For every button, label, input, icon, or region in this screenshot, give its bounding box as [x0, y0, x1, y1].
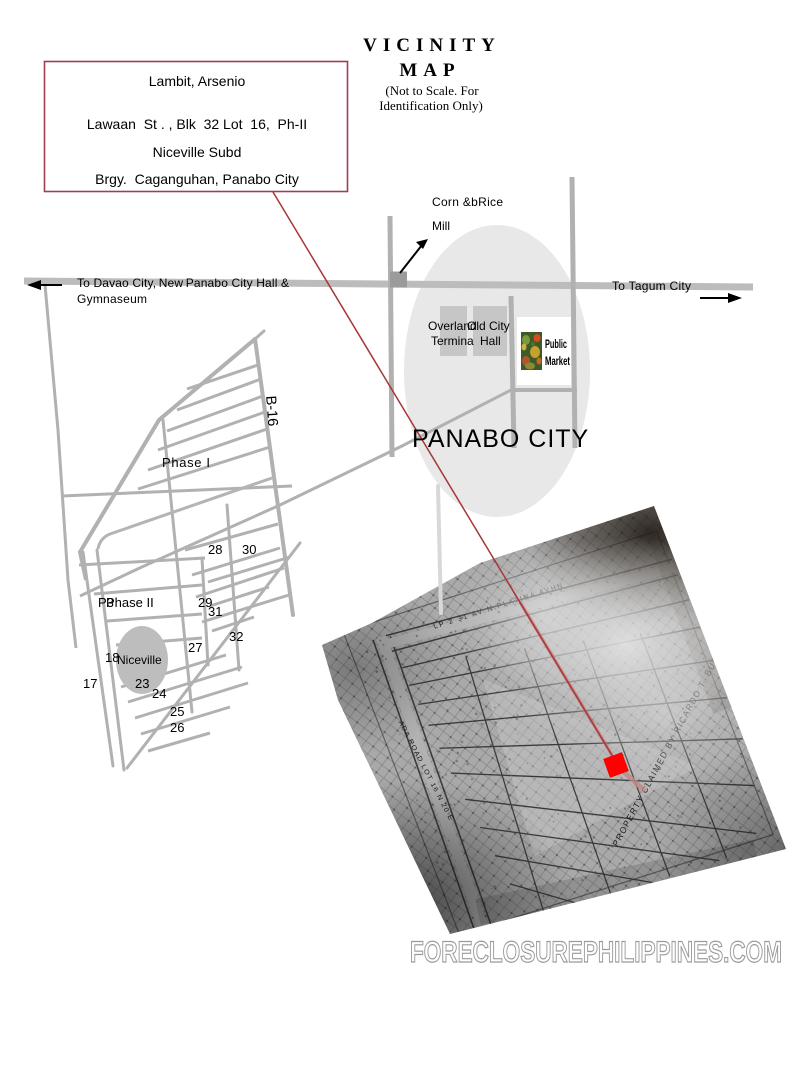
svg-text:27: 27 — [188, 640, 202, 655]
svg-text:Old City: Old City — [467, 319, 510, 333]
svg-text:PANABO CITY: PANABO CITY — [412, 425, 589, 453]
svg-text:Corn &bRice: Corn &bRice — [432, 195, 503, 209]
svg-text:Phase I: Phase I — [162, 455, 210, 470]
svg-text:Phase II: Phase II — [106, 595, 154, 610]
svg-text:Lawaan St . , Blk 32 Lot 16: Lawaan St . , Blk 32 Lot 16, Ph-II — [87, 116, 307, 132]
svg-text:FORECLOSUREPHILIPPINES.COM: FORECLOSUREPHILIPPINES.COM — [410, 936, 782, 969]
svg-text:17: 17 — [83, 676, 97, 691]
svg-text:28: 28 — [208, 542, 222, 557]
svg-text:Niceville Subd: Niceville Subd — [153, 144, 242, 160]
svg-text:24: 24 — [152, 686, 166, 701]
svg-text:Gymnaseum: Gymnaseum — [77, 292, 147, 306]
svg-text:Termina: Termina — [431, 334, 474, 348]
svg-text:B-16: B-16 — [262, 395, 280, 427]
svg-text:Market: Market — [545, 356, 570, 368]
svg-text:To Tagum City: To Tagum City — [612, 279, 691, 293]
svg-text:26: 26 — [170, 720, 184, 735]
svg-text:To Davao City, New Panabo City: To Davao City, New Panabo City Hall & — [77, 276, 289, 290]
svg-text:Identification Only): Identification Only) — [379, 98, 483, 113]
svg-text:Niceville: Niceville — [117, 653, 162, 667]
svg-text:18: 18 — [105, 650, 119, 665]
svg-text:30: 30 — [242, 542, 256, 557]
svg-text:32: 32 — [229, 629, 243, 644]
svg-text:Public: Public — [545, 339, 567, 351]
svg-text:(Not to Scale. For: (Not to Scale. For — [385, 83, 479, 98]
svg-text:MAP: MAP — [399, 60, 460, 81]
svg-text:Lambit, Arsenio: Lambit, Arsenio — [149, 73, 246, 89]
svg-text:VICINITY: VICINITY — [363, 35, 501, 56]
svg-text:Mill: Mill — [432, 219, 450, 233]
svg-text:23: 23 — [135, 676, 149, 691]
svg-text:Hall: Hall — [480, 334, 501, 348]
svg-text:Brgy. Caganguhan, Panabo City: Brgy. Caganguhan, Panabo City — [95, 171, 299, 187]
svg-text:25: 25 — [170, 704, 184, 719]
svg-text:31: 31 — [208, 604, 222, 619]
